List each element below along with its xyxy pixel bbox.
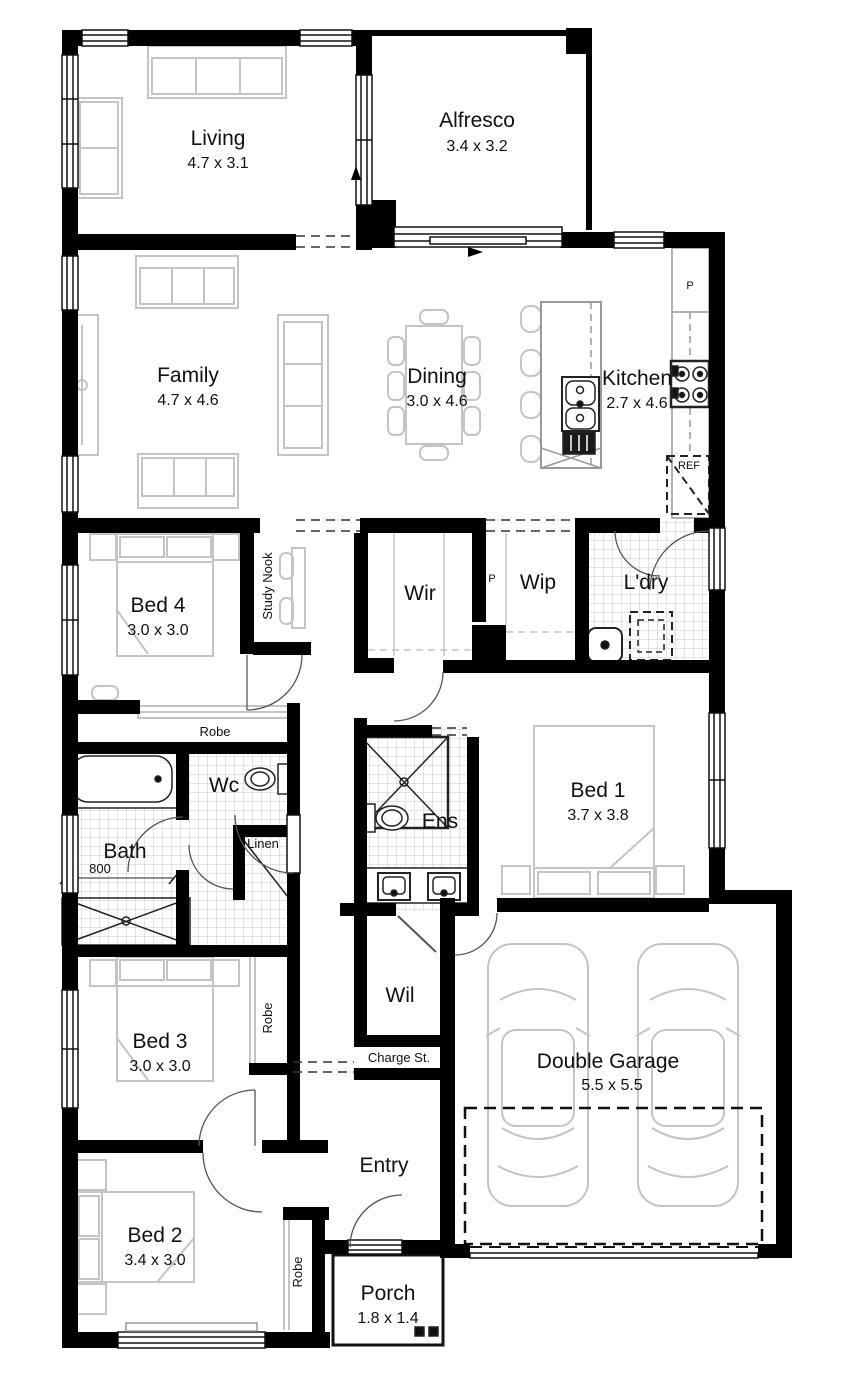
robe-bed4-slider <box>138 706 288 718</box>
opening-living <box>296 234 356 250</box>
label-robe-bed4: Robe <box>199 724 230 739</box>
sliding-door-alfresco <box>394 227 562 247</box>
laundry-sink <box>588 628 622 662</box>
room-label-wip: Wip <box>520 571 556 594</box>
label-linen: Linen <box>247 836 279 851</box>
room-label-garage: Double Garage <box>537 1050 679 1073</box>
door-garage-entry <box>455 913 497 955</box>
room-label-kitchen: Kitchen <box>602 367 672 390</box>
room-label-bed1: Bed 1 <box>571 779 626 802</box>
robe-bed3-slider <box>250 957 255 1063</box>
room-dims-family: 4.7 x 4.6 <box>157 392 218 409</box>
door-wil <box>398 916 436 952</box>
arrow-right-icon <box>468 247 483 257</box>
ens-vanity <box>365 868 475 903</box>
window <box>82 30 128 46</box>
room-dims-bed4: 3.0 x 3.0 <box>127 622 188 639</box>
floor-plan-canvas: Living 4.7 x 3.1 Alfresco 3.4 x 3.2 Fami… <box>0 0 850 1398</box>
window <box>300 30 352 46</box>
car-right <box>636 944 740 1206</box>
label-wip-p: P <box>488 573 495 585</box>
room-label-porch: Porch <box>361 1282 416 1305</box>
door-master-hall <box>394 672 443 721</box>
garage-door <box>470 1247 758 1258</box>
bath-shower <box>62 898 190 945</box>
room-dims-living: 4.7 x 3.1 <box>187 155 248 172</box>
openings <box>293 234 575 1072</box>
walls <box>62 28 792 1348</box>
room-dims-porch: 1.8 x 1.4 <box>357 1310 418 1327</box>
opening-wip <box>486 518 575 533</box>
window <box>614 232 664 248</box>
bed4-bed <box>90 534 239 700</box>
island-sink <box>562 377 599 431</box>
label-study-nook: Study Nook <box>260 552 275 620</box>
window <box>62 565 78 675</box>
room-label-bed2: Bed 2 <box>128 1224 183 1247</box>
bathtub <box>66 750 178 808</box>
window <box>709 713 725 848</box>
door-porch <box>350 1195 402 1247</box>
study-nook-desk <box>280 548 305 628</box>
fixtures <box>60 248 762 1345</box>
room-dims-dining: 3.0 x 4.6 <box>406 393 467 410</box>
living-sofa <box>148 46 286 98</box>
label-ref: REF <box>678 460 700 472</box>
room-label-bed3: Bed 3 <box>133 1030 188 1053</box>
room-dims-garage: 5.5 x 5.5 <box>581 1077 642 1094</box>
room-dims-bed1: 3.7 x 3.8 <box>567 807 628 824</box>
label-shower-dim: 800 <box>89 861 111 876</box>
room-label-wir: Wir <box>404 582 435 605</box>
room-dims-bed3: 3.0 x 3.0 <box>129 1058 190 1075</box>
back-door <box>709 528 725 590</box>
cooktop <box>671 361 709 407</box>
porch-entry-door <box>348 1240 402 1254</box>
kitchen-stools <box>521 306 541 462</box>
room-label-family: Family <box>157 364 219 387</box>
room-label-ens: Ens <box>422 810 458 833</box>
door-bed3 <box>199 1090 255 1146</box>
room-dims-bed2: 3.4 x 3.0 <box>124 1252 185 1269</box>
room-dims-alfresco: 3.4 x 3.2 <box>446 138 507 155</box>
garage-slab <box>465 1108 762 1244</box>
label-robe-bed3: Robe <box>260 1002 275 1033</box>
window <box>62 55 78 188</box>
opening-charge <box>293 1062 354 1072</box>
room-label-entry: Entry <box>359 1154 409 1177</box>
hall-lobby-door <box>287 815 300 873</box>
label-charge-st: Charge St. <box>368 1050 430 1065</box>
door-bed2 <box>203 1153 262 1212</box>
room-label-living: Living <box>191 127 246 150</box>
window <box>62 815 78 893</box>
room-label-bath: Bath <box>103 840 146 863</box>
window <box>356 75 372 205</box>
robe-bed2-slider <box>284 1220 289 1330</box>
room-label-alfresco: Alfresco <box>439 109 515 132</box>
family-sofa-top <box>136 256 238 308</box>
room-label-ldry: L'dry <box>624 571 669 594</box>
window <box>62 990 78 1108</box>
floor-plan-svg: Living 4.7 x 3.1 Alfresco 3.4 x 3.2 Fami… <box>0 0 850 1398</box>
opening-hall <box>296 518 360 533</box>
room-dims-kitchen: 2.7 x 4.6 <box>606 395 667 412</box>
dishwasher <box>563 432 595 454</box>
car-left <box>486 944 590 1206</box>
window <box>62 456 78 512</box>
room-label-dining: Dining <box>407 365 467 388</box>
label-pantry-p: P <box>686 280 693 292</box>
room-label-wc: Wc <box>209 774 239 797</box>
family-sofa-bottom <box>138 454 238 508</box>
family-shelf <box>278 315 328 455</box>
room-label-wil: Wil <box>385 984 414 1007</box>
room-label-bed4: Bed 4 <box>131 594 186 617</box>
window <box>118 1323 265 1348</box>
ens-toilet <box>363 804 408 832</box>
door-bed4 <box>247 655 302 710</box>
window <box>62 256 78 310</box>
label-robe-bed2: Robe <box>290 1256 305 1287</box>
